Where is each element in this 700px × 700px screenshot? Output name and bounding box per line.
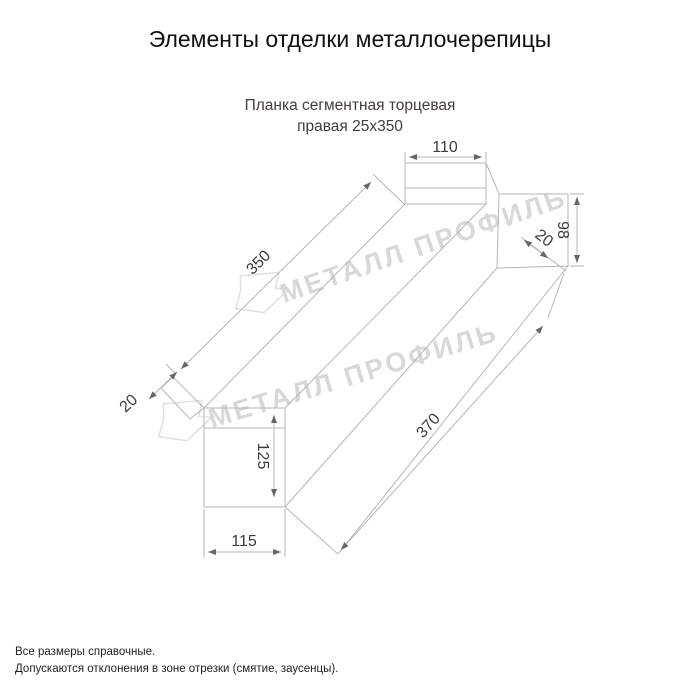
brand-logo-watermark-icon bbox=[150, 392, 216, 449]
dim-label-bottom-height: 125 bbox=[254, 443, 271, 470]
dim-label-bottom-length: 370 bbox=[413, 410, 444, 441]
footer-note-1: Все размеры справочные. bbox=[15, 644, 338, 661]
footer-notes: Все размеры справочные. Допускаются откл… bbox=[15, 644, 338, 678]
dim-label-left-tab: 20 bbox=[117, 391, 142, 416]
dim-label-right-fold: 20 bbox=[532, 226, 557, 250]
dim-label-bottom-width: 115 bbox=[231, 533, 257, 550]
watermark-text-2: МЕТАЛЛ ПРОФИЛЬ bbox=[205, 317, 502, 434]
page: Элементы отделки металлочерепицы Планка … bbox=[0, 0, 700, 700]
technical-drawing: МЕТАЛЛ ПРОФИЛЬ МЕТАЛЛ ПРОФИЛЬ bbox=[0, 0, 700, 700]
dim-label-right-height: 98 bbox=[554, 221, 571, 239]
dim-label-top-width: 110 bbox=[432, 139, 458, 156]
dimension-labels: 110 98 20 350 20 125 115 370 bbox=[117, 139, 571, 550]
footer-note-2: Допускаются отклонения в зоне отрезки (с… bbox=[15, 661, 338, 678]
